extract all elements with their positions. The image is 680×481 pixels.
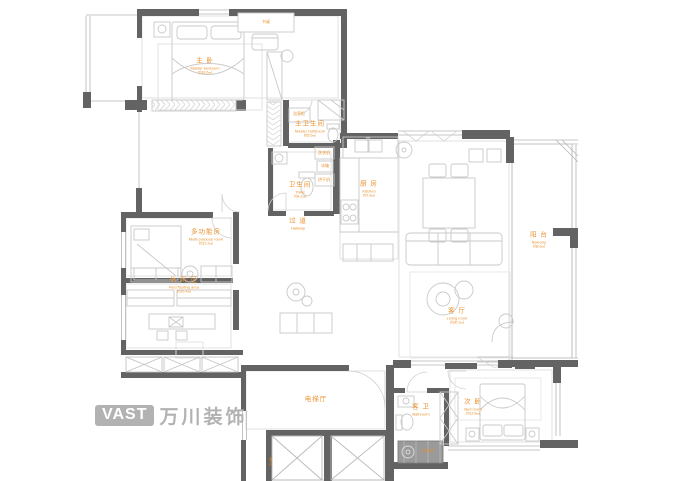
dining-set — [396, 142, 501, 242]
hall-decor — [280, 283, 332, 333]
coffee-table — [427, 281, 473, 315]
brand-logo: VAST 万川装饰 — [95, 402, 248, 429]
master-wardrobe — [152, 52, 282, 146]
floor-plan: 主 卧Master bedroom约18.6㎡ 主卫生间Master bathr… — [0, 0, 680, 481]
master-desk — [238, 13, 294, 62]
multi-room-furniture — [131, 226, 232, 282]
guest-bath-fixtures — [396, 396, 443, 463]
south-hatch-strip — [126, 357, 238, 372]
floor-lamp — [492, 314, 514, 342]
kitchen-counter — [340, 137, 398, 261]
master-bed — [154, 22, 262, 110]
brand-logo-name: 万川装饰 — [159, 402, 247, 429]
window-flip-marks — [403, 131, 513, 368]
master-bath-fixtures — [289, 100, 344, 142]
sofa — [406, 233, 510, 358]
brand-logo-badge: VAST — [95, 405, 154, 426]
bathroom-fixtures — [272, 152, 315, 196]
second-bed — [455, 378, 541, 441]
